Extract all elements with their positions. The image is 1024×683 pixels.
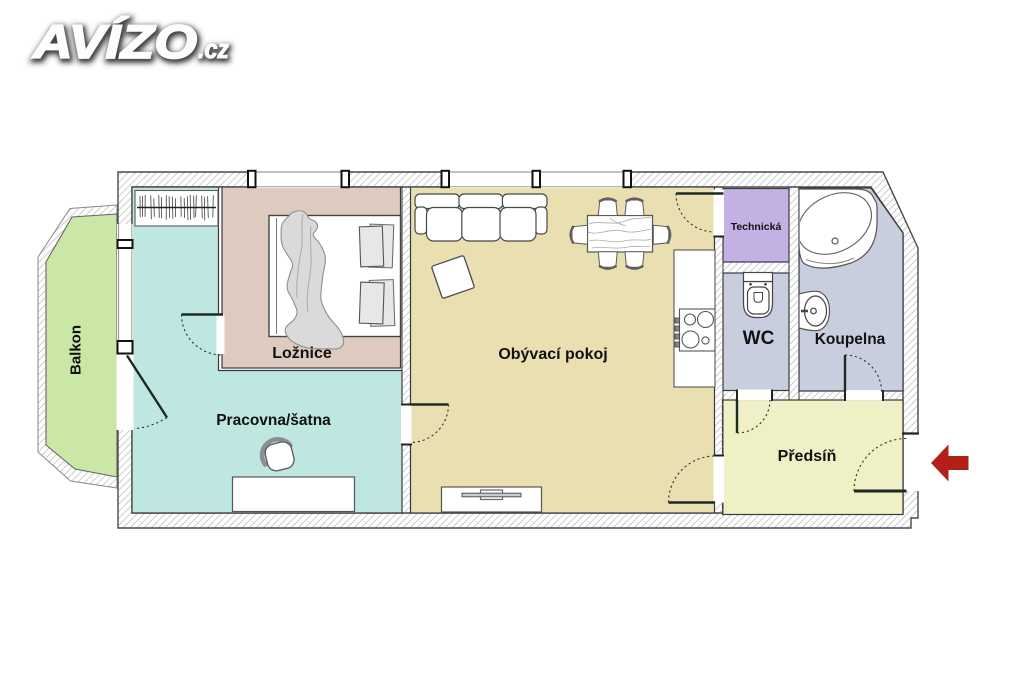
svg-text:.cz: .cz [198, 34, 229, 64]
svg-text:Koupelna: Koupelna [815, 331, 886, 348]
svg-text:Obývací pokoj: Obývací pokoj [498, 346, 607, 363]
svg-text:WC: WC [743, 328, 775, 349]
svg-text:Pracovna/šatna: Pracovna/šatna [216, 412, 331, 429]
svg-text:Balkon: Balkon [68, 325, 85, 375]
svg-text:AVÍZO: AVÍZO [32, 15, 197, 68]
svg-text:Předsíň: Předsíň [778, 448, 837, 465]
svg-text:Technická: Technická [731, 221, 782, 233]
svg-text:Ložnice: Ložnice [272, 345, 332, 362]
